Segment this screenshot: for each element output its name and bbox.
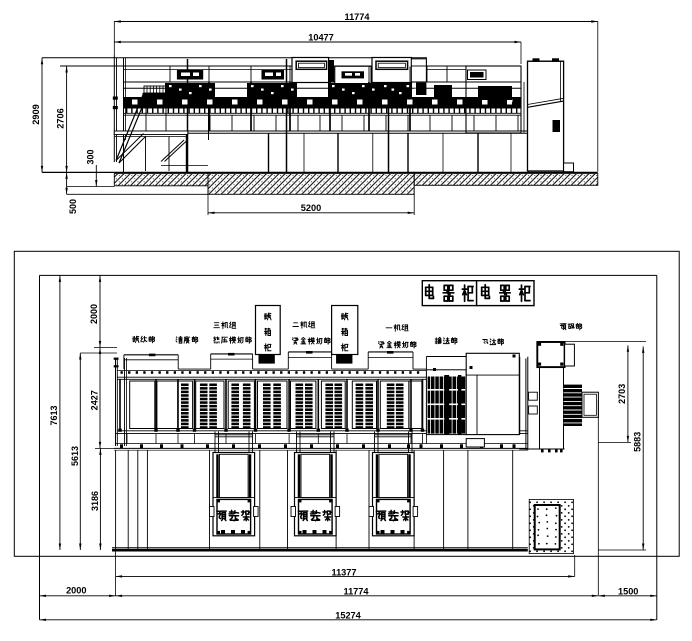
- svg-text:2000: 2000: [89, 304, 99, 324]
- svg-text:7613: 7613: [49, 405, 59, 425]
- svg-text:2703: 2703: [617, 384, 627, 404]
- svg-text:2427: 2427: [90, 390, 100, 410]
- svg-text:5613: 5613: [70, 446, 80, 466]
- svg-text:3186: 3186: [90, 491, 100, 511]
- svg-text:2000: 2000: [66, 585, 86, 595]
- svg-text:11377: 11377: [331, 567, 356, 577]
- svg-text:2909: 2909: [31, 104, 41, 124]
- svg-text:5883: 5883: [632, 432, 642, 452]
- svg-text:5200: 5200: [301, 203, 321, 213]
- svg-text:11774: 11774: [344, 12, 370, 22]
- svg-text:500: 500: [68, 199, 78, 214]
- svg-text:10477: 10477: [308, 32, 334, 42]
- svg-text:11774: 11774: [343, 586, 369, 596]
- svg-text:300: 300: [86, 149, 96, 164]
- svg-text:15274: 15274: [335, 610, 361, 620]
- svg-text:2706: 2706: [56, 108, 66, 128]
- svg-text:1500: 1500: [618, 586, 638, 596]
